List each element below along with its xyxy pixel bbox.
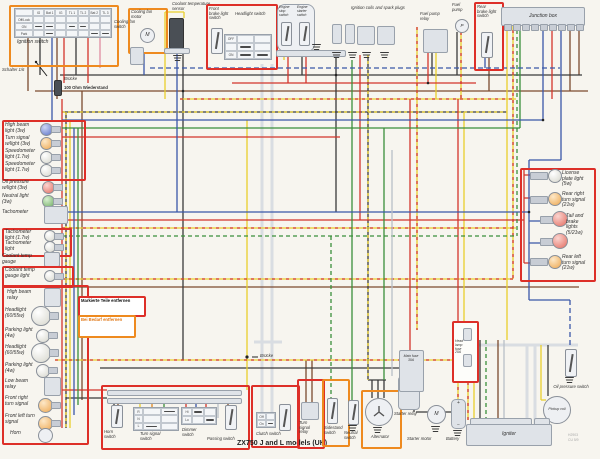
- high-beam-relay-label: High beam relay: [7, 290, 39, 301]
- ignition-switch-table: IG Bat 1 IG TL 1 TL 2 Bat 2 TL 3 Off/Loc…: [14, 8, 112, 38]
- bei-bedarf-note: Bei Bedarf entfernen: [81, 318, 127, 323]
- starter-motor-label: Starter motor: [407, 437, 443, 442]
- bulb-base: [51, 126, 61, 133]
- spark-plug-icon: [345, 24, 355, 44]
- parking-light1-label: Parking light (4w): [5, 328, 33, 339]
- junction-tab: [522, 24, 530, 31]
- col-header: TL 2: [78, 9, 89, 16]
- alternator-icon: [365, 398, 393, 426]
- neutral-switch-icon: [348, 400, 359, 425]
- turn-signal-bulb-icon: [548, 255, 562, 269]
- rear-left-turn-signal-label: Rear left turn signal (21w): [562, 255, 590, 272]
- clutch-switch-icon: [279, 404, 291, 431]
- starter-motor-icon: M: [427, 405, 446, 424]
- headlight-bulb-icon: [31, 343, 51, 363]
- tachometer-icon: [44, 206, 68, 224]
- neutral-light-label: Neutral light (3w): [2, 194, 38, 205]
- switch-bus-bar: [107, 390, 242, 396]
- bulb-base: [48, 332, 58, 339]
- igniter-label: Igniter: [502, 432, 516, 438]
- dimmer-switch-table: Hi Lo: [181, 407, 217, 425]
- license-plate-light-label: License plate light (5w): [562, 171, 590, 188]
- low-beam-relay-label: Low beam relay: [5, 379, 37, 390]
- bulb-base: [530, 196, 548, 204]
- passing-switch-icon: [225, 405, 237, 430]
- coolant-temp-sensor-icon: [169, 18, 184, 49]
- front-brake-switch-icon: [211, 28, 223, 54]
- battery-plus: +: [457, 400, 460, 406]
- bulb-base: [530, 258, 548, 266]
- horn-label: Horn: [10, 431, 34, 437]
- oil-pressure-switch-icon: [565, 349, 577, 377]
- fuel-pump-relay-icon: [423, 29, 448, 53]
- dimmer-switch-label: Dimmer switch: [182, 428, 206, 437]
- turn-signal-relay-label: Turn signal relay: [299, 421, 319, 435]
- high-beam-relay-icon: [44, 288, 61, 307]
- schalter-annotation: Schalter 1/6: [2, 68, 32, 73]
- row-label: ON: [15, 23, 33, 30]
- resistor-icon: [54, 80, 62, 96]
- horn-icon: [38, 428, 53, 443]
- ignition-coil-icon: [377, 26, 395, 45]
- front-right-turn-signal-label: Front right turn signal: [5, 396, 35, 407]
- fan-motor-icon: M: [140, 28, 155, 43]
- bulb-base: [51, 420, 61, 427]
- row-label: Lo: [182, 416, 192, 424]
- col-header: TL 1: [66, 9, 77, 16]
- spark-plug-icon: [332, 24, 342, 44]
- horn-switch-label: Horn switch: [104, 430, 124, 439]
- rear-right-turn-signal-label: Rear right turn signal (21w): [562, 192, 590, 209]
- bulb-base: [53, 184, 63, 191]
- junction-tab: [504, 24, 512, 31]
- row-label: L: [134, 423, 143, 430]
- clutch-switch-label: Clutch switch: [256, 432, 292, 437]
- bulb-base: [49, 312, 59, 320]
- bulb-base: [51, 167, 61, 174]
- junction-box-label: Junction box: [529, 14, 557, 20]
- markierte-note: Markierte Teile entfernen: [81, 299, 139, 304]
- headlamp-fuse-label: Head lamp fuse 20A: [455, 340, 465, 355]
- clutch-switch-table: Off On: [256, 412, 276, 428]
- tail-brake-lights-label: Tail and brake lights (5/21w): [566, 214, 591, 236]
- headlight1-label: Headlight (60/55w): [5, 308, 33, 319]
- tachometer-label: Tachometer: [2, 210, 40, 216]
- widerstand-annotation: 100 Ohm Wiederstand: [64, 86, 130, 91]
- col-header: TL 3: [100, 9, 111, 16]
- turn-signal-relay-icon: [301, 402, 319, 420]
- bulb-base: [51, 140, 61, 147]
- sensor-mount-bar: [164, 48, 190, 54]
- junction-tab: [540, 24, 548, 31]
- coolant-temp-gauge-light-label: Coolant temp gauge light: [5, 268, 41, 279]
- bulb-base: [51, 402, 61, 409]
- col-header: IG: [55, 9, 66, 16]
- junction-tab: [576, 24, 584, 31]
- headlight2-label: Headlight (60/55w): [5, 345, 33, 356]
- wiring-diagram: IG Bat 1 IG TL 1 TL 2 Bat 2 TL 3 Off/Loc…: [0, 0, 600, 459]
- col-header: Bat 1: [44, 9, 55, 16]
- coolant-temp-gauge-label: Coolant temp gauge: [2, 254, 42, 265]
- headlight-switch-table: OFF ON: [224, 34, 272, 60]
- turn-signal-switch-label: Turn signal switch: [140, 432, 166, 441]
- bulb-base: [53, 198, 63, 205]
- bulb-base: [51, 154, 61, 161]
- row-label: [225, 43, 237, 51]
- headlight-switch-label: Headlight switch: [235, 12, 269, 17]
- ignition-switch-label: Ignition switch: [17, 40, 59, 46]
- engine-starter-switch-icon: [299, 22, 310, 46]
- bulb-base: [54, 273, 64, 280]
- cooling-fan-motor-label: Cooling fan motor: [131, 10, 159, 19]
- bulb-base: [54, 244, 64, 251]
- front-left-turn-signal-label: Front left turn signal: [5, 414, 35, 425]
- fuel-pump-relay-label: Fuel pump relay: [420, 12, 444, 21]
- speedometer-light2-label: Speedometer light (1.7w): [5, 162, 38, 173]
- bruecke-annotation: Brücke: [64, 77, 86, 82]
- oil-pressure-wlight-label: Oil pressure w/light (3w): [2, 180, 38, 191]
- bulb-base: [54, 233, 64, 240]
- turn-signal-switch-table: R N L: [133, 407, 179, 431]
- battery-icon: + −: [451, 399, 466, 429]
- row-label: On: [257, 420, 266, 427]
- footnote-line2: CU 5/9: [568, 439, 592, 443]
- coolant-temp-gauge-icon: [44, 252, 60, 267]
- fan-connector: [130, 47, 144, 65]
- fuse-icon: [463, 354, 472, 367]
- engine-starter-switch-label: Engine starter switch: [297, 6, 313, 17]
- horn-switch-icon: [111, 405, 123, 428]
- rear-brake-switch-icon: [481, 32, 493, 58]
- row-label: ON: [225, 51, 237, 59]
- alternator-label: Alternator: [364, 435, 396, 440]
- switch-bus-bar: [107, 398, 242, 404]
- row-label: OFF: [225, 35, 237, 43]
- sidestand-switch-icon: [327, 398, 338, 424]
- row-label: Off: [257, 413, 266, 420]
- ignition-coils-label: Ignition coils and spark plugs: [342, 6, 414, 11]
- rear-brake-light-switch-label: Rear brake light switch: [477, 5, 497, 19]
- bulb-base: [530, 172, 548, 180]
- headlight-bulb-icon: [31, 306, 51, 326]
- fuel-pump-label: Fuel pump: [452, 3, 470, 12]
- junction-tab: [513, 24, 521, 31]
- high-beam-light-label: High beam light (3w): [5, 123, 38, 134]
- tachometer-light2-label: Tachometer light: [5, 241, 41, 252]
- engine-stop-switch-label: Engine stop switch: [279, 6, 295, 17]
- turn-signal-bulb-icon: [548, 192, 562, 206]
- bulb-base: [48, 367, 58, 374]
- row-label: N: [134, 415, 143, 422]
- bulb-base: [49, 349, 59, 357]
- main-fuse-label: Main fuse 30A: [402, 355, 420, 363]
- front-brake-light-switch-label: Front brake light switch: [209, 7, 229, 21]
- turn-signal-wlight-label: Turn signal w/light (3w): [5, 136, 38, 147]
- row-label: R: [134, 408, 143, 415]
- fuel-pump-icon: P: [455, 19, 469, 33]
- sidestand-switch-label: Sidestand switch: [324, 426, 344, 435]
- junction-tab: [558, 24, 566, 31]
- ignition-coil-icon: [357, 26, 375, 45]
- junction-tab: [531, 24, 539, 31]
- igniter-box: Igniter: [466, 424, 552, 446]
- battery-minus: −: [457, 422, 460, 428]
- oil-pressure-switch-label: Oil pressure switch: [552, 385, 590, 390]
- row-label: Off/Lock: [15, 16, 33, 23]
- engine-stop-switch-icon: [281, 22, 292, 46]
- junction-tab: [567, 24, 575, 31]
- starter-relay-label: Starter relay: [394, 412, 420, 417]
- parking-light2-label: Parking light (4w): [5, 363, 33, 374]
- row-label: Hi: [182, 408, 192, 416]
- bruecke-mid-annotation: Brücke: [260, 354, 282, 359]
- low-beam-relay-icon: [44, 377, 61, 396]
- col-header: IG: [33, 9, 44, 16]
- col-header: Bat 2: [89, 9, 100, 16]
- license-bulb-icon: [548, 169, 562, 183]
- speedometer-light1-label: Speedometer light (1.7w): [5, 149, 38, 160]
- row-label: Park: [15, 30, 33, 37]
- junction-tab: [549, 24, 557, 31]
